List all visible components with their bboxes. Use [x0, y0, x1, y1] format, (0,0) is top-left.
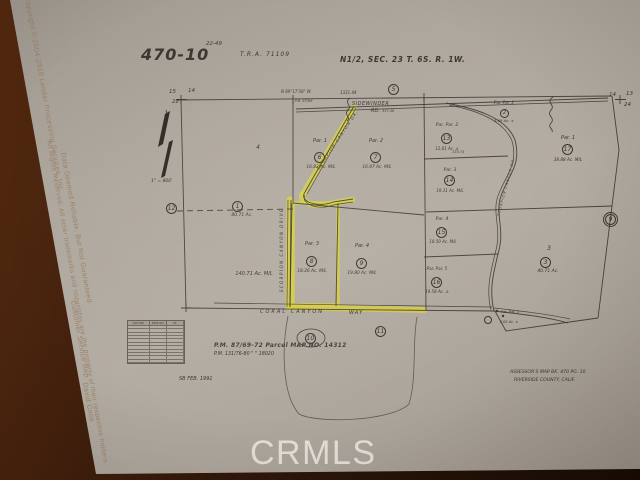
- north-arrow-icon: [158, 111, 173, 178]
- assessment-circle: 1: [232, 201, 243, 212]
- renumber-table: OLD NO. NEW NO. YR.: [127, 320, 185, 364]
- road-label-scorpion-vertical: SCORPION CANYON DRIVE: [280, 204, 284, 296]
- distance-label: 133.74: [452, 151, 464, 155]
- map-linework: [0, 0, 640, 480]
- photo-of-parcel-map: 8/2019 Copyright © 2004-2019 Lender Proc…: [0, 0, 640, 480]
- parcel-area: 16.82 Ac. M/L: [298, 166, 344, 171]
- parcel-area: 19.31 Ac. M/L: [426, 189, 474, 193]
- parcel-label: Par. 1: [550, 136, 586, 141]
- parcel-area: 3.69 Ac. ±: [488, 119, 520, 123]
- parcel-label: Par. Par. 5: [415, 267, 459, 271]
- parcel-area: 19.58 Ac. ±: [415, 290, 459, 294]
- assessment-circle: 17: [562, 144, 573, 155]
- parcel-label: Par. 2: [360, 139, 392, 144]
- crmls-watermark: CRMLS: [250, 434, 377, 473]
- parcel-label: Par. 4: [344, 244, 380, 249]
- assessment-circle: [484, 316, 492, 324]
- corner-label: 24: [624, 103, 631, 109]
- parcel-label: Par. Par. 2: [485, 101, 523, 105]
- corner-label: 14: [188, 89, 195, 95]
- corner-label: 22: [172, 100, 179, 106]
- corner-label: 14: [609, 93, 616, 99]
- assessment-circle: 8: [306, 256, 317, 267]
- road-label-coral-way: WAY: [349, 311, 363, 316]
- map-number: 470-10: [141, 47, 209, 64]
- parcel-label: Par. Par. 5: [492, 311, 528, 315]
- parcel-label: Par. Par. 2: [426, 124, 468, 129]
- table-header-cell: YR.: [167, 321, 184, 325]
- assessment-circle: 6: [314, 152, 325, 163]
- parcel-map-note-1: P.M. 87/69-72 Parcel MAP NO. 14312: [214, 343, 347, 349]
- parcel-label: Par. 3: [434, 169, 466, 174]
- road-label-sidewinder-rd: RD.: [371, 109, 380, 114]
- table-header-cell: OLD NO.: [128, 321, 150, 325]
- parcel-area: 80.71 Ac.: [220, 214, 264, 219]
- legal-description: N1/2, SEC. 23 T. 6S. R. 1W.: [340, 56, 465, 64]
- corner-label: 15: [169, 90, 176, 96]
- parcel-area: 12.61 Ac. ±: [426, 147, 468, 151]
- parcel-label: 3: [543, 246, 555, 252]
- assessment-circle: 3: [540, 257, 551, 268]
- assessment-circle: 13: [441, 133, 452, 144]
- parcel-label: 4: [252, 145, 264, 151]
- parcel-area: 19.80 Ac. M/L: [338, 272, 386, 277]
- paper-sheet: 8/2019 Copyright © 2004-2019 Lender Proc…: [0, 0, 640, 480]
- parcel-area: 140.71 Ac. M/L: [222, 272, 286, 277]
- sheet-ref-circle: 5: [388, 84, 399, 95]
- assessor-note-2: RIVERSIDE COUNTY, CALIF.: [514, 379, 575, 384]
- distance-label: 1321.44: [340, 91, 357, 95]
- road-label-coral-canyon: CORAL CANYON: [260, 310, 324, 315]
- parcel-label-highlighted: Par. 3: [294, 242, 330, 247]
- sheet-ref-circle: 11: [375, 326, 386, 337]
- parcel-area: 18.50 Ac. M/L: [420, 240, 466, 244]
- sheet-ref-circle: 12: [166, 203, 177, 214]
- bearing-label: N 89°17'38" W: [281, 90, 311, 94]
- assessment-circle: 7: [370, 152, 381, 163]
- parcel-area: 5.05 Ac. ±: [493, 321, 525, 325]
- parcel-label: Par. 4: [425, 218, 459, 223]
- distance-label: 337.48: [382, 110, 394, 114]
- assessor-note-1: ASSESSOR'S MAP BK. 470 PG. 10: [510, 371, 586, 376]
- parcel-area: 40.71 Ac.: [528, 270, 568, 275]
- scale-label: 1" = 800': [151, 180, 172, 185]
- table-header-cell: NEW NO.: [150, 321, 167, 325]
- parcel-area: 38.88 Ac. M/L: [543, 158, 593, 162]
- assessment-circle: 9: [356, 258, 367, 269]
- parcel-area: 16.97 Ac. M/L: [354, 166, 400, 171]
- parcel-area: 18.26 Ac. M/L: [288, 270, 336, 275]
- parcel-map-note-2: P.M. 131/76-80 " " 18020: [214, 352, 274, 357]
- assessment-circle: 15: [436, 227, 447, 238]
- corner-label: 13: [626, 92, 633, 98]
- watermark-date: 8/2019: [0, 2, 8, 27]
- sheet-ref-circle: 9: [605, 214, 616, 225]
- table-row: [128, 360, 184, 363]
- drawn-date-note: SB FEB. 1991: [179, 377, 213, 382]
- parcel-label: Par. 1: [304, 139, 336, 144]
- plat-book-ref: P.B. 87/68: [295, 100, 312, 104]
- assessment-circle: 14: [444, 175, 455, 186]
- map-number-superscript: 22-49: [206, 42, 222, 48]
- assessment-circle: 16: [431, 277, 442, 288]
- tra-number: T.R.A. 71109: [240, 52, 290, 58]
- assessment-circle: 2: [500, 109, 509, 118]
